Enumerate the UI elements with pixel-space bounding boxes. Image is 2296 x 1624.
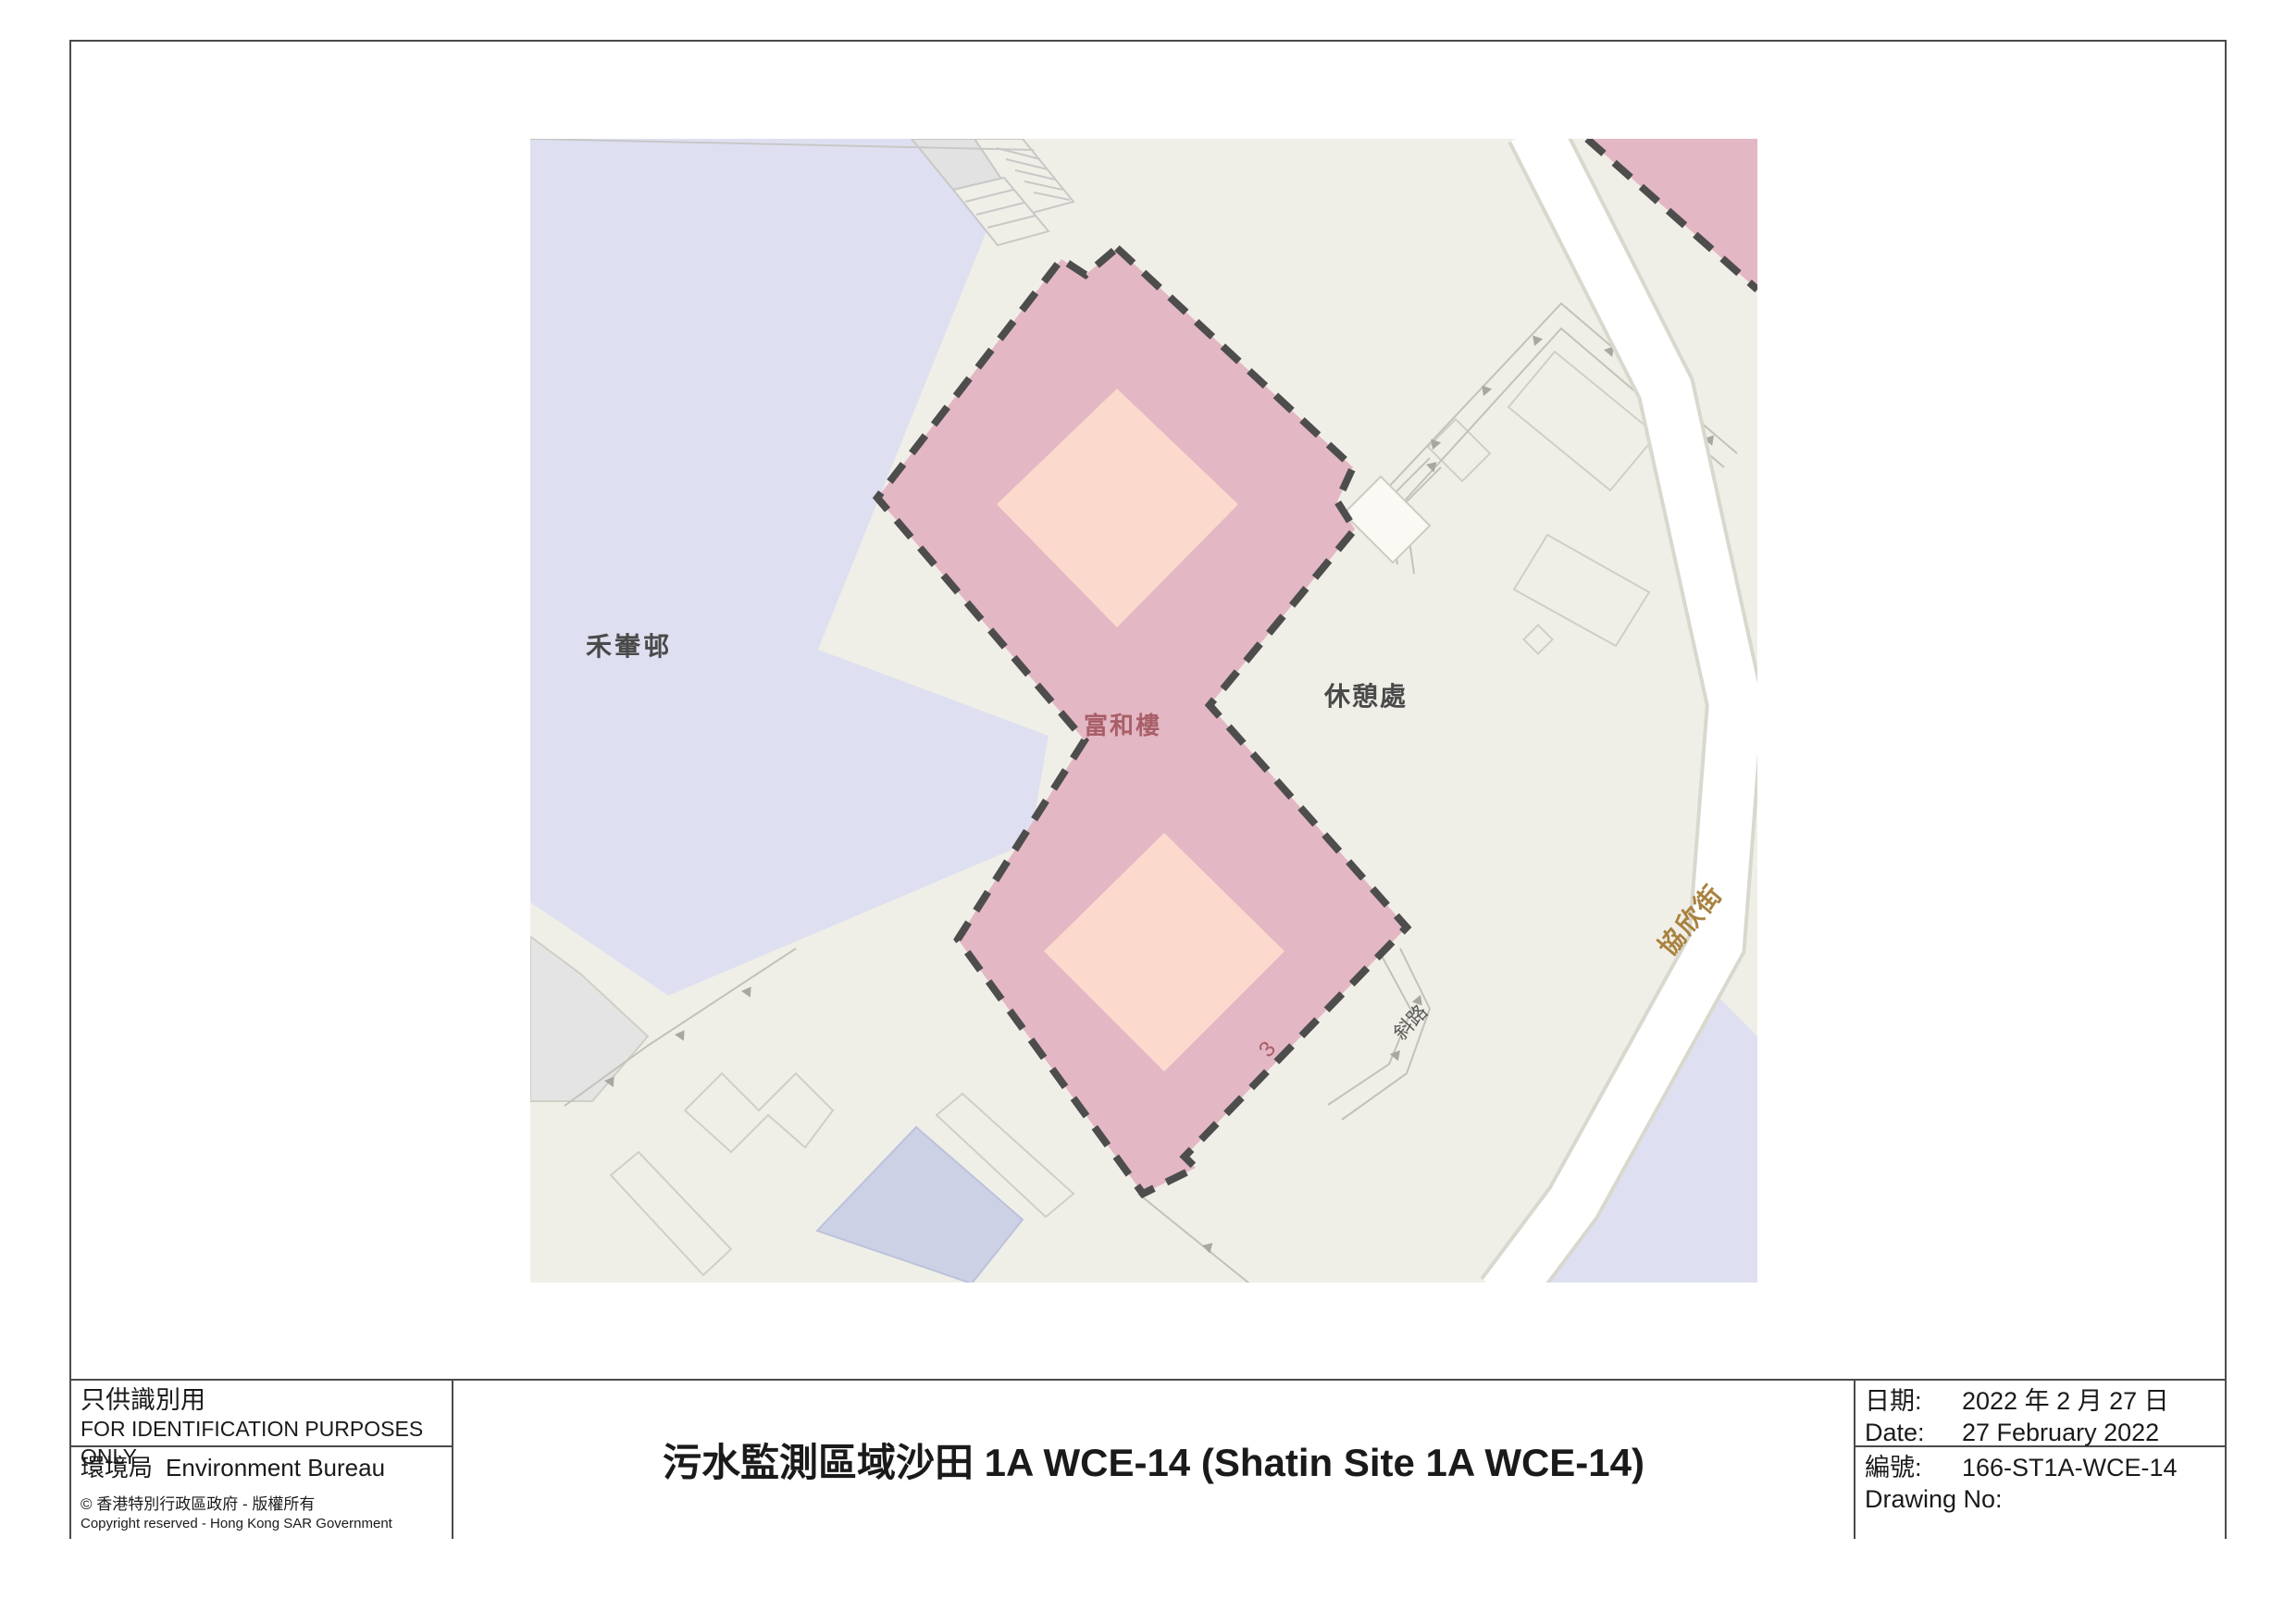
date-value-zh: 2022 年 2 月 27 日 — [1962, 1385, 2215, 1417]
date-value-en: 27 February 2022 — [1962, 1417, 2215, 1448]
title-block: 只供識別用 FOR IDENTIFICATION PURPOSES ONLY 環… — [69, 1379, 2227, 1539]
map-label-rest-area: 休憩處 — [1323, 681, 1408, 711]
drawing-no-label-en: Drawing No: — [1865, 1483, 2003, 1515]
bureau-name-en: Environment Bureau — [166, 1454, 385, 1481]
sheet-title: 污水監測區域沙田 1A WCE-14 (Shatin Site 1A WCE-1… — [663, 1432, 1644, 1488]
copyright-zh: © 香港特別行政區政府 - 版權所有 — [81, 1494, 392, 1515]
map-label-fu-wo-house: 富和樓 — [1084, 712, 1161, 739]
identification-note: 只供識別用 FOR IDENTIFICATION PURPOSES ONLY — [71, 1381, 452, 1447]
identification-note-zh: 只供識別用 — [81, 1385, 442, 1415]
copyright-notice: © 香港特別行政區政府 - 版權所有 Copyright reserved - … — [81, 1494, 392, 1533]
identification-panel: 只供識別用 FOR IDENTIFICATION PURPOSES ONLY 環… — [71, 1381, 453, 1539]
date-label-en: Date: — [1865, 1417, 1962, 1448]
drawing-no-value: 166-ST1A-WCE-14 — [1962, 1452, 2215, 1483]
drawing-no-label-zh: 編號: — [1865, 1452, 1962, 1483]
copyright-en: Copyright reserved - Hong Kong SAR Gover… — [81, 1515, 392, 1533]
bureau-name-zh: 環境局 — [81, 1454, 153, 1481]
date-label-zh: 日期: — [1865, 1385, 1962, 1417]
title-panel: 污水監測區域沙田 1A WCE-14 (Shatin Site 1A WCE-1… — [453, 1381, 1854, 1539]
bureau-name: 環境局Environment Bureau — [81, 1452, 442, 1483]
drawing-info-panel: 日期: 2022 年 2 月 27 日 Date: 27 February 20… — [1854, 1381, 2225, 1539]
bureau-panel: 環境局Environment Bureau © 香港特別行政區政府 - 版權所有… — [71, 1447, 452, 1539]
date-block: 日期: 2022 年 2 月 27 日 Date: 27 February 20… — [1855, 1381, 2225, 1447]
site-map: 禾輋邨 休憩處 富和樓 協欣街 斜路 3 — [530, 139, 1757, 1283]
drawing-no-block: 編號: 166-ST1A-WCE-14 Drawing No: — [1855, 1447, 2225, 1539]
map-label-wo-che-estate: 禾輋邨 — [586, 632, 672, 661]
